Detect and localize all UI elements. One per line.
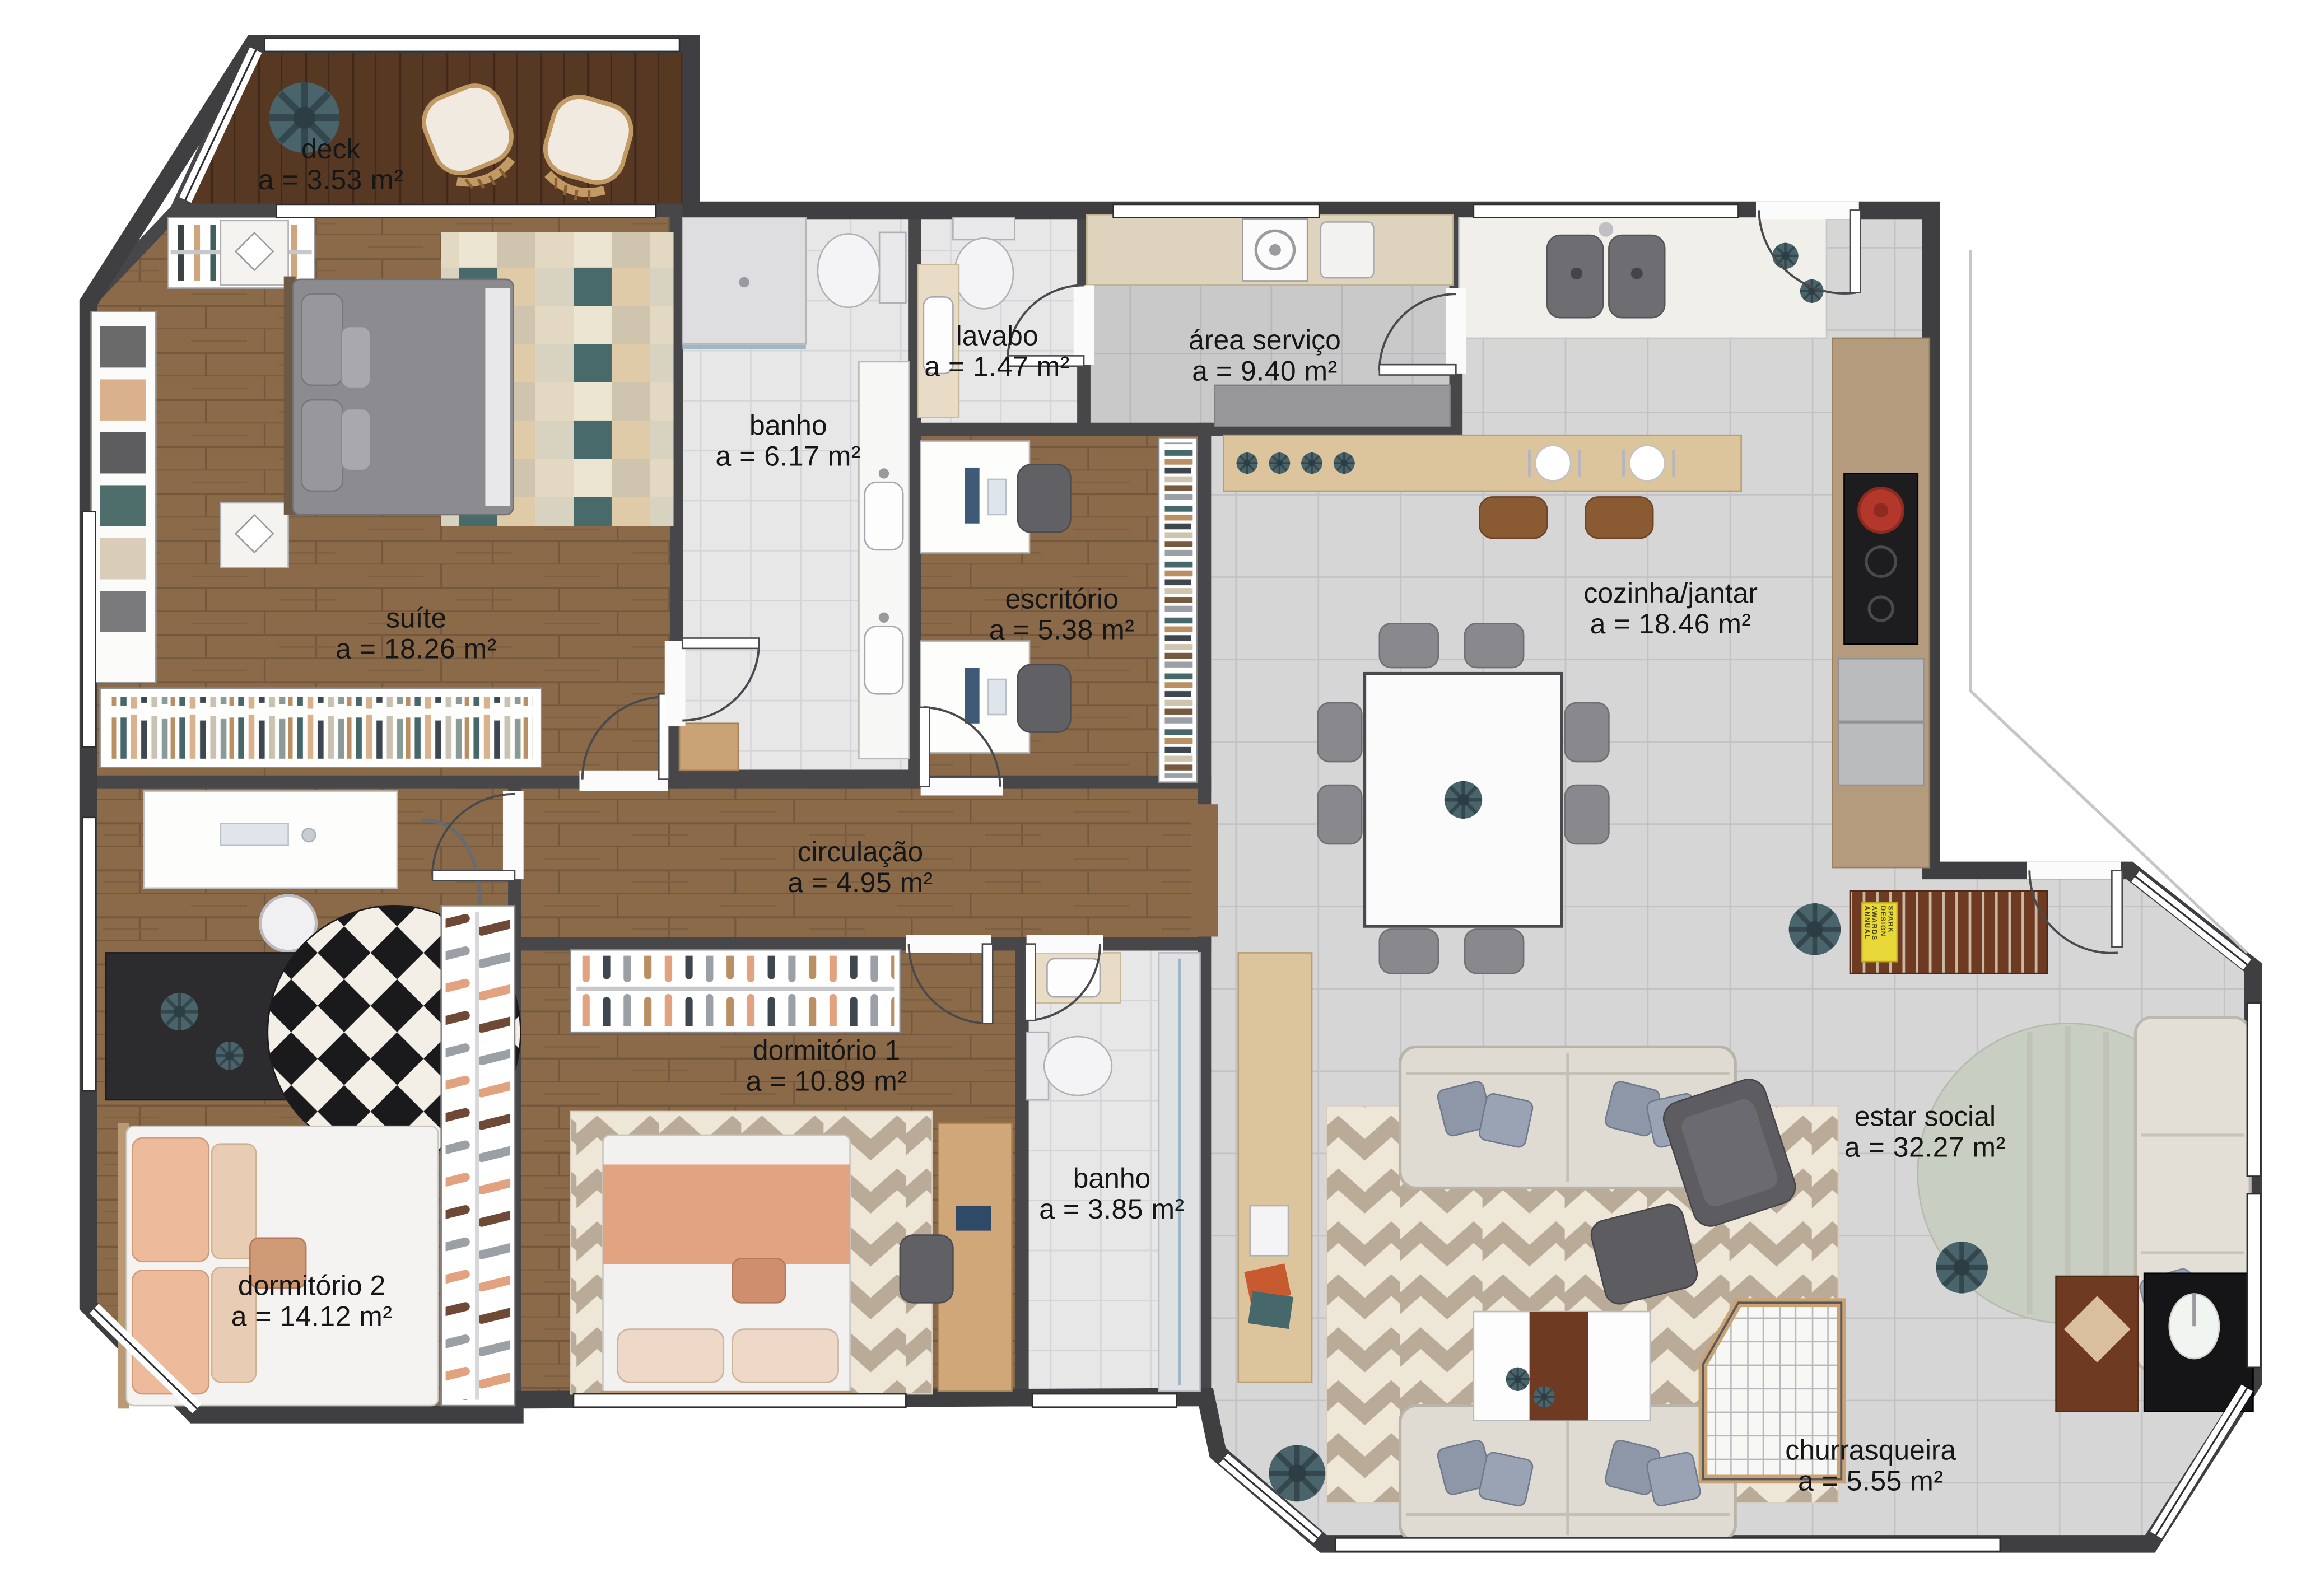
room-area: a = 4.95 m²: [788, 869, 933, 900]
window-estar-right-1: [2247, 1003, 2261, 1177]
room-label-escritorio: escritório a = 5.38 m²: [989, 585, 1135, 647]
bar-chair-1: [1479, 497, 1547, 538]
room-label-churrasqueira: churrasqueira a = 5.55 m²: [1785, 1436, 1956, 1499]
room-name: circulação: [788, 838, 933, 869]
window-banho2-bottom: [1032, 1394, 1176, 1407]
banho-suite-bench: [679, 724, 738, 771]
office-chair-1: [1018, 465, 1071, 533]
room-name: estar social: [1844, 1103, 2006, 1134]
servico-sink: [1321, 222, 1374, 278]
faucet-1: [879, 468, 889, 478]
room-name: lavabo: [924, 321, 1070, 353]
window-dorm2-left: [82, 818, 96, 1091]
bbq-counter-sink: [2144, 1273, 2253, 1412]
room-label-banho-suite: banho a = 6.17 m²: [716, 411, 861, 474]
balcony-edge-line: [1970, 250, 2247, 953]
room-label-circulacao: circulação a = 4.95 m²: [788, 838, 933, 900]
dining-chair: [1380, 929, 1438, 973]
bar-chair-2: [1585, 497, 1653, 538]
room-area: a = 18.46 m²: [1583, 610, 1758, 642]
floor-plan: deck a = 3.53 m² suíte a = 18.26 m² banh…: [0, 0, 2306, 1595]
room-area: a = 10.89 m²: [746, 1067, 907, 1099]
dorm2-desk: [144, 791, 397, 888]
plant-table: [1445, 781, 1482, 819]
dorm2-wardrobe: [441, 906, 515, 1406]
window-suite-deck-slider: [277, 204, 656, 218]
bookshelf: [1159, 438, 1197, 782]
dorm1-bed: [600, 1135, 853, 1400]
door-leaf-banho2: [1025, 944, 1035, 1021]
office-chair-2: [1018, 665, 1071, 732]
suite-bed: [284, 277, 514, 515]
room-label-estar-social: estar social a = 32.27 m²: [1844, 1103, 2006, 1165]
door-leaf-servico: [1380, 365, 1456, 375]
room-name: suíte: [336, 604, 497, 635]
room-name: banho: [1039, 1164, 1185, 1196]
door-gap-lavabo: [1074, 285, 1094, 365]
suite-book-bench: [100, 688, 542, 768]
washing-machine: [1243, 219, 1308, 281]
plant-estar-bottom: [1269, 1445, 1325, 1501]
room-area: a = 3.53 m²: [258, 166, 404, 198]
place-setting-1: [1535, 446, 1571, 481]
room-name: banho: [716, 411, 861, 442]
door-gap-servico: [1446, 288, 1466, 374]
door-leaf-escritorio: [919, 707, 929, 787]
room-area: a = 9.40 m²: [1189, 357, 1341, 389]
window-suite-left: [82, 512, 96, 747]
room-label-lavabo: lavabo a = 1.47 m²: [924, 321, 1070, 384]
desk-2: [921, 641, 1029, 753]
sideboard-book-text: SPARK DESIGN AWARDS ANNUAL: [1863, 906, 1894, 964]
window-estar-right-2: [2247, 1194, 2261, 1368]
window-deck-top: [265, 38, 679, 52]
room-label-deck: deck a = 3.53 m²: [258, 135, 404, 198]
room-name: escritório: [989, 585, 1135, 616]
room-label-area-servico: área serviço a = 9.40 m²: [1189, 326, 1341, 389]
window-kitchen-top: [1474, 204, 1739, 218]
room-area: a = 5.38 m²: [989, 616, 1135, 647]
dining-chair: [1565, 703, 1609, 762]
room-name: deck: [258, 135, 404, 166]
door-gap-dorm1: [906, 935, 991, 953]
floor-plan-drawing: [0, 0, 2306, 1595]
place-setting-2: [1629, 446, 1665, 481]
door-gap-entry: [1756, 202, 1859, 220]
room-area: a = 1.47 m²: [924, 353, 1070, 384]
dining-chair: [1380, 623, 1438, 668]
dining-chair: [1318, 703, 1362, 762]
dining-chair: [1565, 785, 1609, 844]
sink-1: [865, 482, 903, 550]
shower-drain: [739, 277, 749, 287]
room-area: a = 6.17 m²: [716, 442, 861, 474]
dorm2-bed: [118, 1123, 438, 1408]
cooktop: [1844, 473, 1918, 644]
room-name: cozinha/jantar: [1583, 579, 1758, 610]
room-label-banho-social: banho a = 3.85 m²: [1039, 1164, 1185, 1227]
dining-chair: [1318, 785, 1362, 844]
coffee-table: [1474, 1312, 1650, 1420]
plant-tv: [1789, 903, 1841, 955]
bbq-wood-cabinet: [2056, 1276, 2139, 1412]
toilet-lavabo: [953, 218, 1014, 309]
room-label-dormitorio1: dormitório 1 a = 10.89 m²: [746, 1036, 907, 1099]
room-area: a = 3.85 m²: [1039, 1196, 1185, 1227]
room-name: dormitório 1: [746, 1036, 907, 1067]
room-label-cozinha: cozinha/jantar a = 18.46 m²: [1583, 579, 1758, 642]
desk-1: [921, 441, 1029, 553]
window-dorm1-bottom: [574, 1394, 906, 1407]
door-leaf-dorm1: [982, 944, 993, 1024]
door-leaf-dorm2: [432, 870, 515, 880]
door-leaf-entry: [1850, 210, 1860, 292]
servico-cabinet: [1215, 385, 1450, 427]
banho-suite-vanity: [859, 362, 909, 759]
door-gap-banho-suite: [665, 641, 686, 726]
plant-estar-right: [1936, 1242, 1987, 1293]
room-area: a = 18.26 m²: [336, 635, 497, 666]
dorm1-wardrobe: [571, 950, 900, 1032]
breakfast-bar: [1223, 435, 1741, 491]
fridge: [1838, 659, 1923, 785]
room-name: área serviço: [1189, 326, 1341, 357]
faucet-2: [879, 613, 889, 623]
estar-sideboard-left: [1238, 953, 1312, 1382]
door-leaf-balcony: [2112, 870, 2122, 947]
door-gap-escritorio: [921, 778, 1003, 796]
plant-kitchen-1: [1772, 243, 1798, 269]
room-area: a = 5.55 m²: [1785, 1467, 1956, 1499]
door-gap-banho2: [1027, 935, 1103, 953]
door-leaf-banho-suite: [682, 638, 759, 648]
room-label-dormitorio2: dormitório 2 a = 14.12 m²: [231, 1271, 393, 1334]
room-area: a = 14.12 m²: [231, 1303, 393, 1334]
sofa-bottom: [1400, 1406, 1736, 1541]
door-gap-dorm2: [503, 791, 524, 880]
door-gap-suite: [579, 771, 668, 791]
dining-chair: [1465, 929, 1524, 973]
toilet-banho2: [1027, 1032, 1112, 1100]
toilet-suite: [818, 232, 906, 307]
dorm1-chair: [900, 1235, 953, 1303]
window-estar-bottom: [1335, 1538, 2000, 1551]
sink-2: [865, 627, 903, 694]
dining-chair: [1465, 623, 1524, 668]
room-area: a = 32.27 m²: [1844, 1133, 2006, 1165]
window-servico-top: [1114, 204, 1320, 218]
room-name: dormitório 2: [231, 1271, 393, 1303]
room-name: churrasqueira: [1785, 1436, 1956, 1468]
room-label-suite: suíte a = 18.26 m²: [336, 604, 497, 666]
passage-hall-estar: [1191, 804, 1218, 936]
